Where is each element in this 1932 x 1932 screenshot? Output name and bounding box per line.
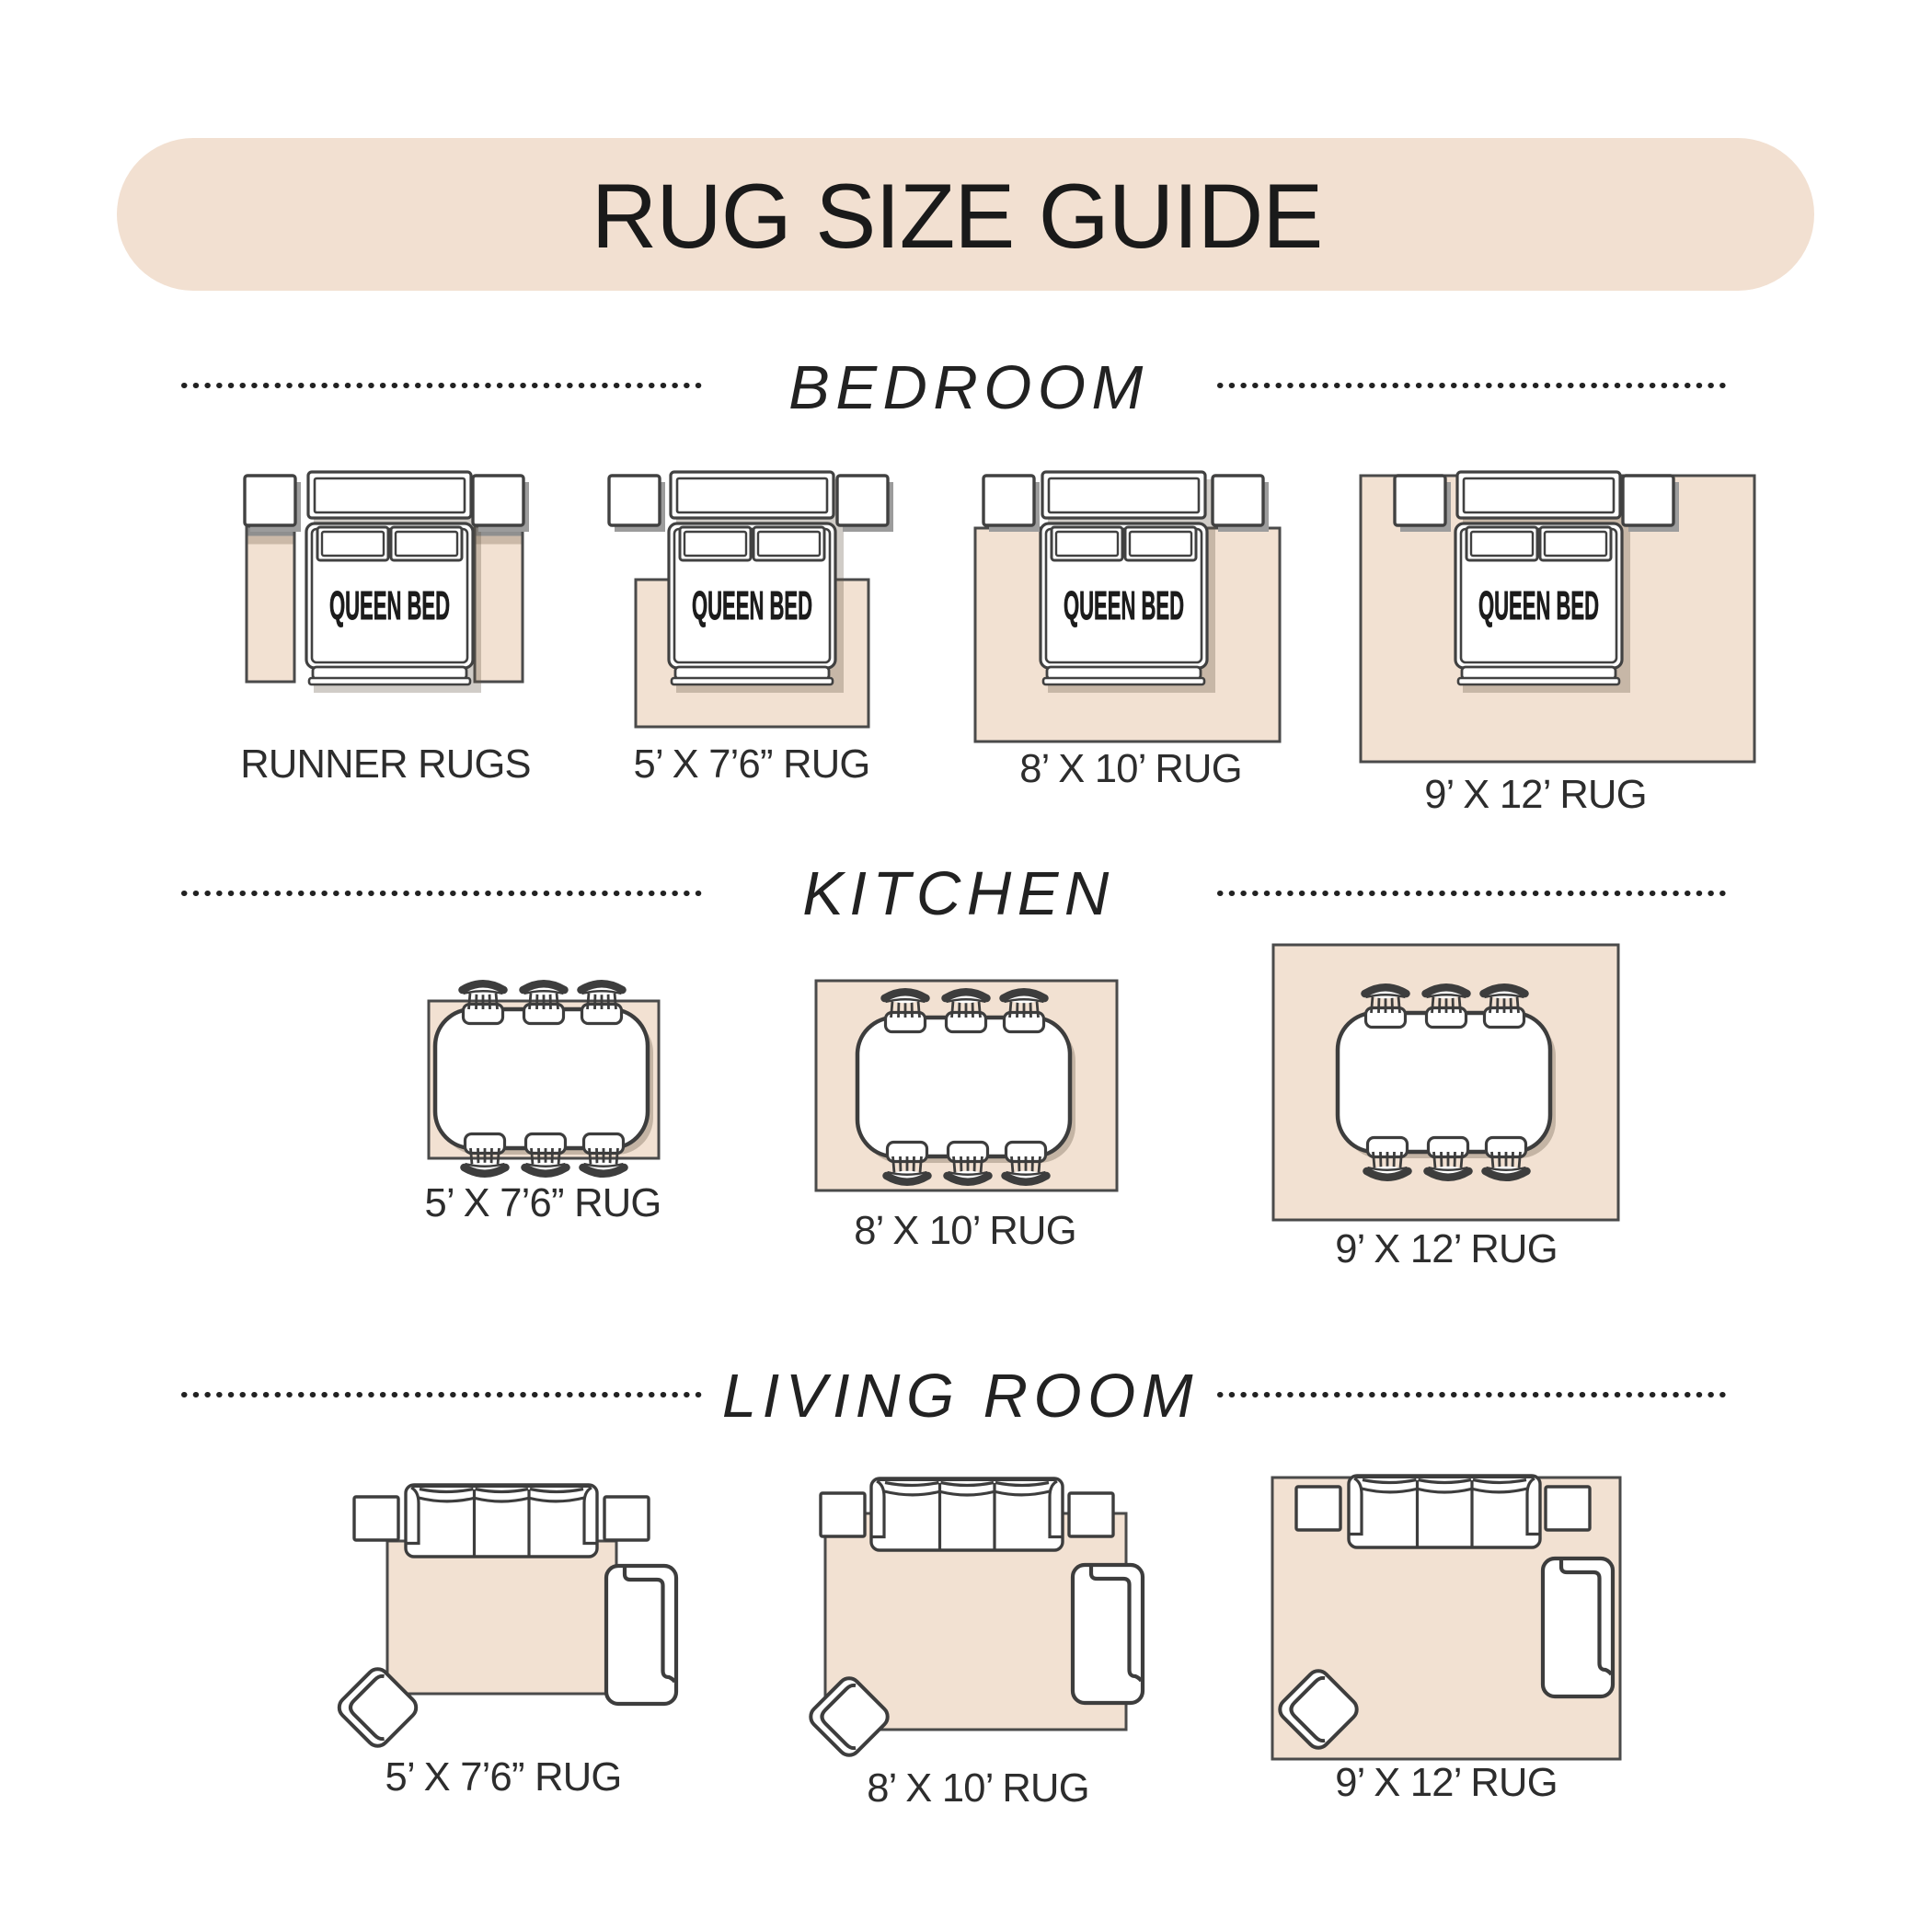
- svg-text:BEDROOM: BEDROOM: [788, 353, 1149, 422]
- svg-text:RUG SIZE GUIDE: RUG SIZE GUIDE: [592, 165, 1323, 267]
- svg-text:9’ X 12’ RUG: 9’ X 12’ RUG: [1424, 773, 1647, 817]
- svg-text:5’ X 7’6” RUG: 5’ X 7’6” RUG: [385, 1755, 622, 1800]
- svg-text:9’ X 12’ RUG: 9’ X 12’ RUG: [1335, 1227, 1558, 1271]
- svg-text:9’ X 12’ RUG: 9’ X 12’ RUG: [1335, 1761, 1558, 1805]
- svg-text:KITCHEN: KITCHEN: [802, 859, 1115, 928]
- svg-text:5’ X 7’6” RUG: 5’ X 7’6” RUG: [425, 1181, 661, 1225]
- svg-text:8’ X 10’ RUG: 8’ X 10’ RUG: [854, 1209, 1076, 1253]
- svg-text:5’ X 7’6” RUG: 5’ X 7’6” RUG: [634, 742, 870, 787]
- svg-text:8’ X 10’ RUG: 8’ X 10’ RUG: [867, 1766, 1089, 1811]
- svg-text:8’ X 10’ RUG: 8’ X 10’ RUG: [1019, 747, 1242, 791]
- svg-text:LIVING ROOM: LIVING ROOM: [722, 1362, 1199, 1431]
- svg-text:RUNNER RUGS: RUNNER RUGS: [240, 742, 531, 787]
